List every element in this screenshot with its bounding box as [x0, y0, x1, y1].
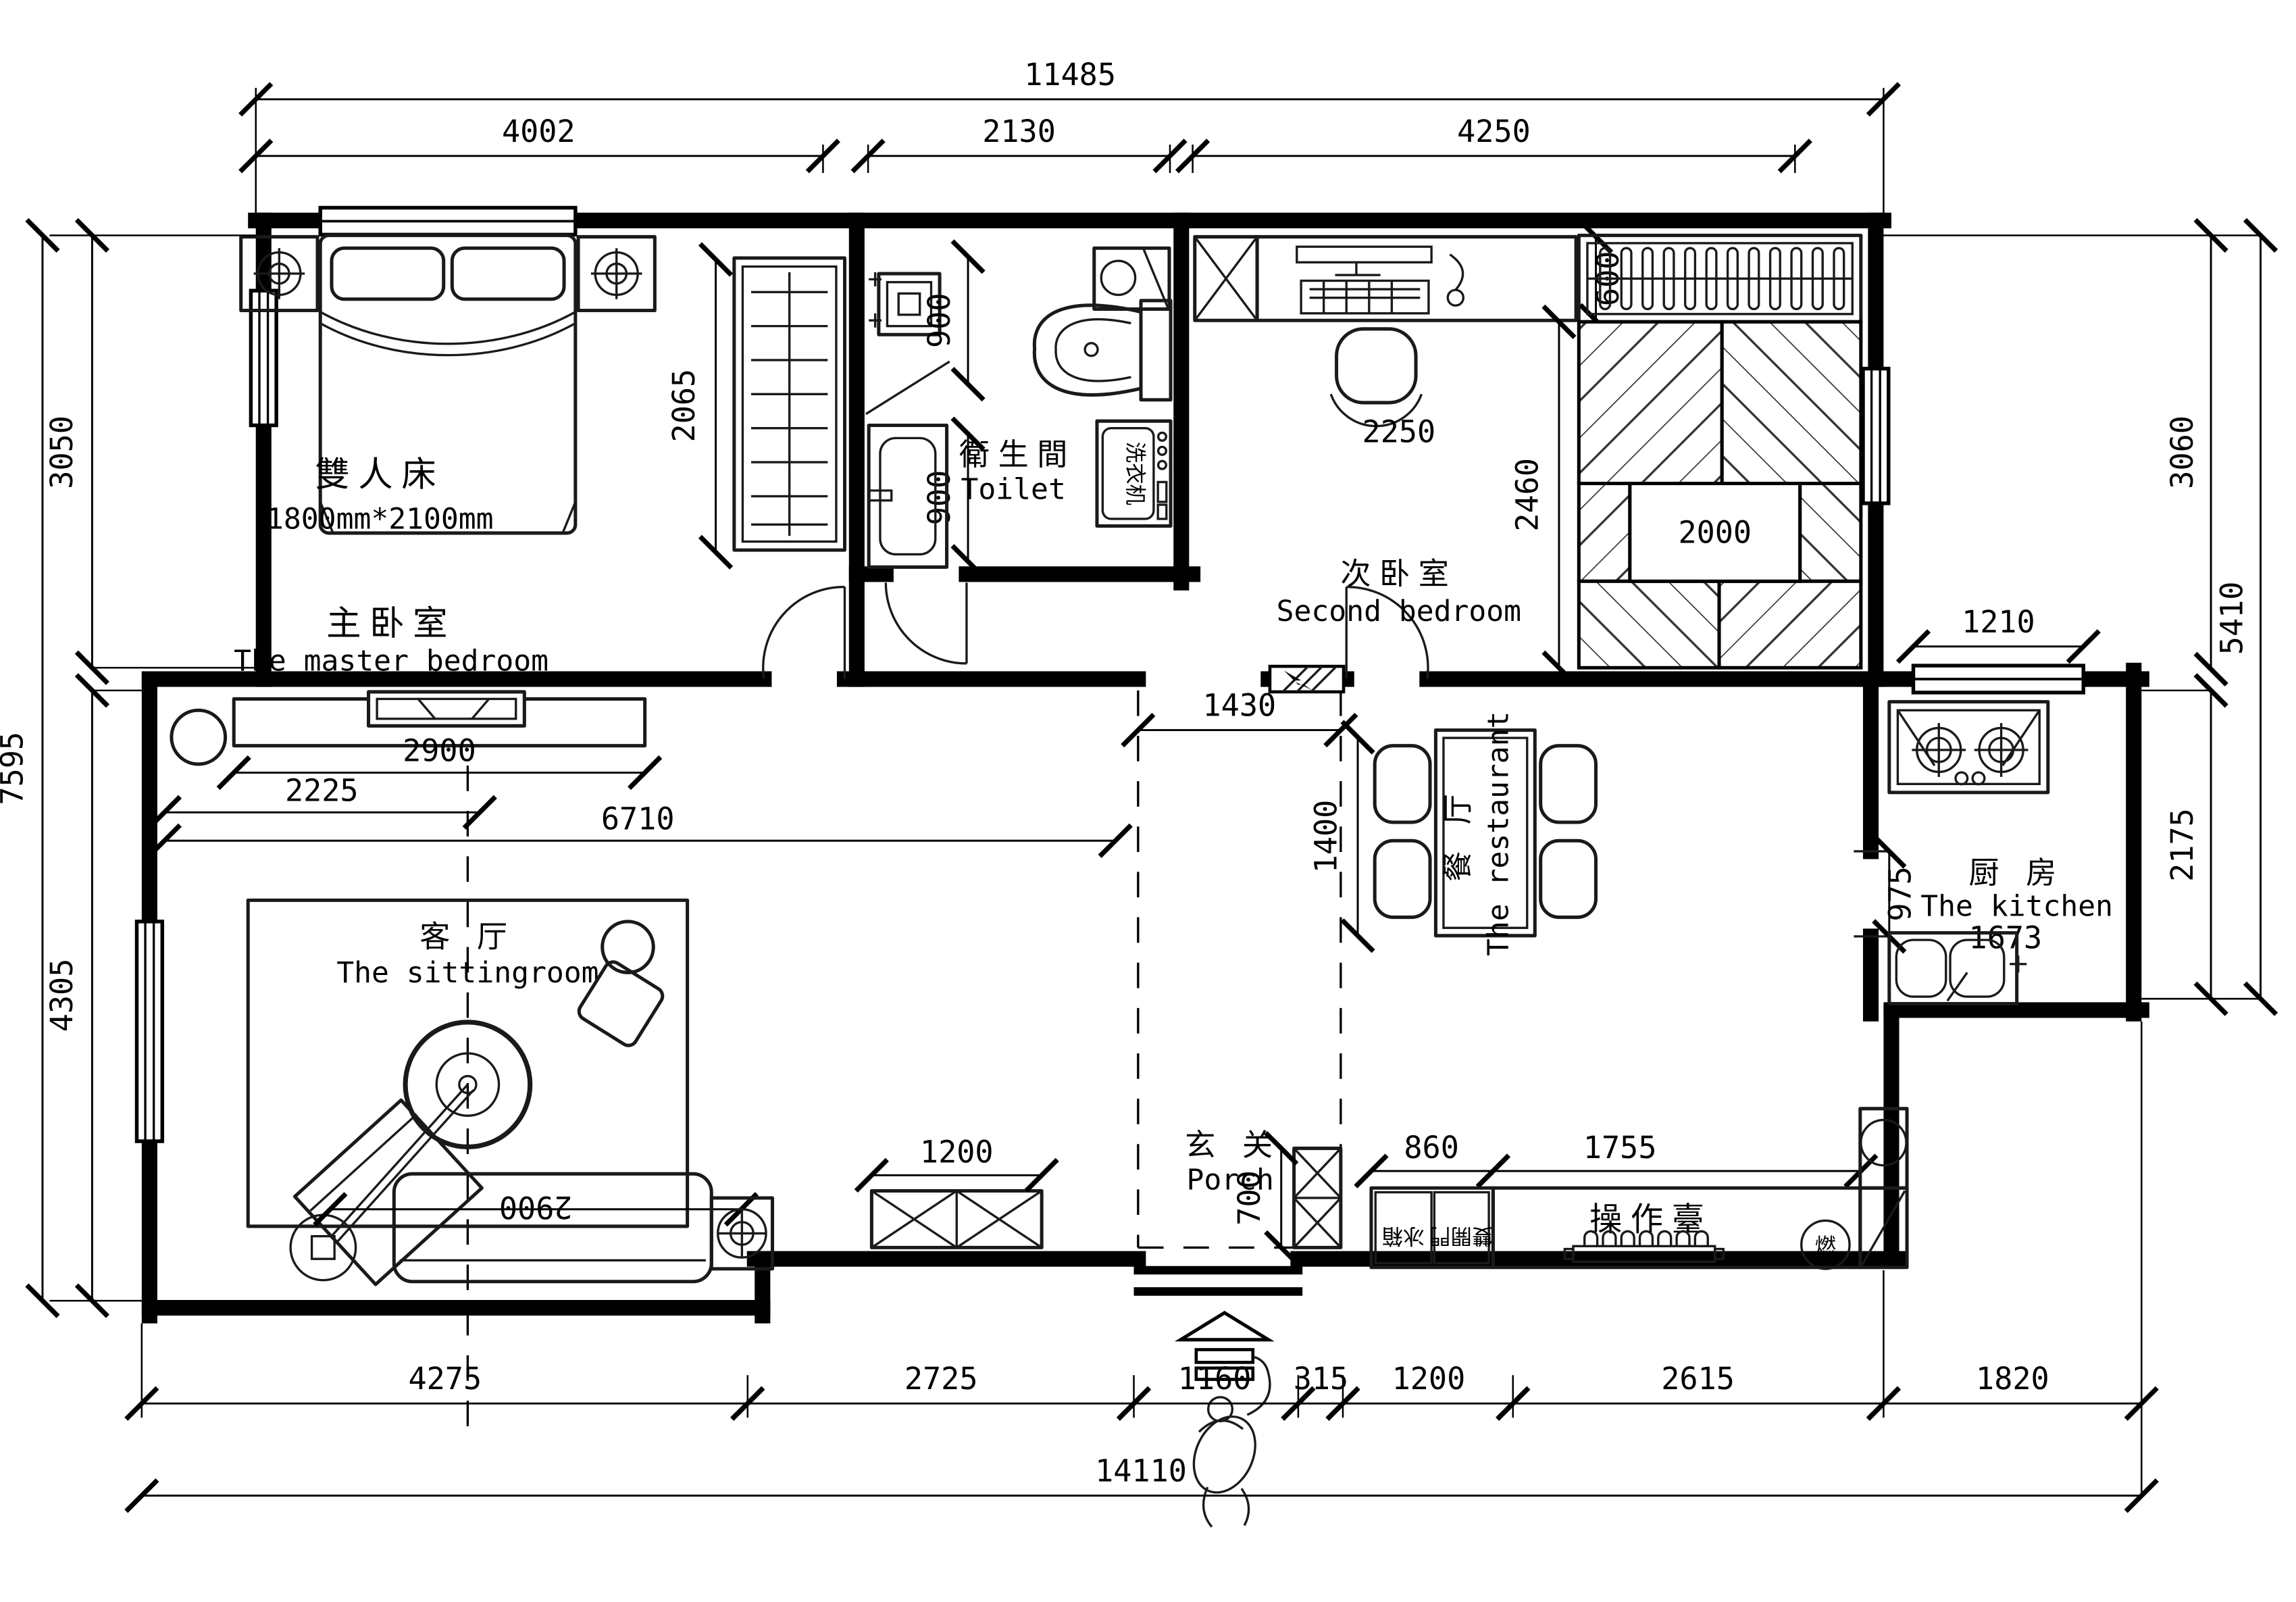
desk [1257, 236, 1576, 320]
dim-tatami-length: 2460 [1509, 458, 1545, 532]
dim-bottom-total: 14110 [1095, 1453, 1187, 1489]
pillow-left [332, 248, 444, 299]
dining-table: 餐 厅 The restaurant [1435, 711, 1535, 956]
electrical-panel [1270, 666, 1344, 692]
second-bedroom-label-en: Second bedroom [1277, 595, 1521, 628]
dim-b3: 1160 [1178, 1361, 1252, 1397]
dimensions-top: 11485 4002 2130 4250 [256, 57, 1884, 220]
toilet-door [886, 582, 967, 664]
dim-top-second: 4250 [1457, 114, 1531, 149]
chair-2 [1375, 841, 1430, 917]
second-cabinet-x [1195, 236, 1257, 320]
kitchen-label-en: The kitchen [1920, 889, 2113, 923]
floor-plan-drawing: 雙人床 1800mm*2100mm 主卧室 The master bedroom… [0, 0, 2296, 1602]
storage-cabinet-1200 [871, 1191, 1042, 1247]
dim-shoe: 700 [1231, 1170, 1267, 1225]
pillow-right [452, 248, 564, 299]
second-bedroom: 600 2250 2000 [1195, 235, 1861, 668]
window-kitchen-top [1914, 666, 2084, 693]
dim-dining: 1400 [1308, 800, 1344, 874]
sitting-label-zh: 客 厅 [419, 919, 515, 955]
counter-strip: 860 1755 冰箱 雙開門 操作臺 燃 [1371, 1109, 1907, 1269]
window-master-top [320, 207, 576, 234]
dim-wardrobe: 2065 [666, 369, 702, 443]
dim-right-top: 3060 [2164, 416, 2200, 489]
master-bedroom-label-en: The master bedroom [234, 644, 549, 678]
dim-b5: 1200 [1392, 1361, 1466, 1397]
fridge-label-right: 雙開門 [1429, 1224, 1493, 1248]
second-bedroom-label-zh: 次卧室 [1340, 555, 1457, 591]
dim-top-toilet: 2130 [982, 114, 1056, 149]
dim-kitchen-window: 1210 [1962, 604, 2035, 640]
chair-3 [1541, 746, 1596, 822]
toilet-label-zh: 衛生間 [959, 436, 1076, 472]
floor-lamp-arm [330, 1084, 474, 1243]
dim-living: 6710 [601, 801, 675, 836]
dim-b6: 2615 [1661, 1361, 1735, 1397]
dim-kitchen-width: 1673 [1969, 920, 2043, 956]
dim-top-master: 4002 [502, 114, 576, 149]
washing-machine-label: 洗衣机 [1123, 442, 1147, 505]
floor-plan-page: 雙人床 1800mm*2100mm 主卧室 The master bedroom… [0, 0, 2296, 1602]
dim-porch: 1430 [1203, 688, 1277, 724]
dining-room: 餐 厅 The restaurant 1400 [1308, 711, 1596, 956]
washbasin [869, 425, 946, 567]
dim-tv: 2900 [403, 733, 476, 769]
dim-tatami-width: 2000 [1678, 515, 1752, 551]
plant-pot [172, 710, 226, 764]
dim-right-kitchen: 2175 [2164, 808, 2200, 882]
kitchen-label-zh: 厨 房 [1969, 855, 2065, 891]
desk-chair [1331, 329, 1421, 426]
dim-vanity: 900 [921, 470, 957, 525]
gas-meter-label: 燃 [1815, 1234, 1836, 1259]
sitting-room: 2900 2225 6710 客 厅 The sittingroom [164, 692, 1115, 1284]
sitting-label-en: The sittingroom [336, 956, 598, 990]
bed-size-label: 1800mm*2100mm [266, 503, 494, 536]
dim-left-bottom: 4305 [44, 959, 80, 1032]
dimensions-left: 3050 4305 7595 [0, 235, 256, 1301]
master-bedroom: 雙人床 1800mm*2100mm 主卧室 The master bedroom… [234, 235, 844, 678]
dim-sofa: 2900 [499, 1189, 573, 1225]
shoe-cabinet [1294, 1149, 1341, 1248]
toilet-label-en: Toilet [961, 473, 1066, 507]
dim-counter: 1755 [1583, 1130, 1657, 1166]
entry-threshold [1138, 1270, 1298, 1291]
second-wardrobe [1579, 235, 1861, 322]
window-second-right [1863, 369, 1889, 503]
dim-shower: 900 [921, 293, 957, 347]
dim-tvoffset: 2225 [285, 773, 359, 809]
restaurant-label-zh: 餐 厅 [1440, 786, 1476, 882]
bed-label: 雙人床 [315, 455, 444, 495]
fridge-label-left: 冰箱 [1382, 1224, 1425, 1248]
master-bedroom-label-zh: 主卧室 [326, 603, 456, 644]
dim-cabinet: 1200 [920, 1134, 994, 1170]
shower-partition [866, 361, 950, 414]
window-sitting-left [136, 922, 162, 1141]
dimensions-right: 3060 2175 5410 [1883, 235, 2260, 999]
bed-blanket-fold [320, 312, 576, 355]
dim-b2: 2725 [904, 1361, 978, 1397]
master-wardrobe [734, 258, 845, 550]
nightstand-right [578, 236, 655, 310]
stove [1889, 702, 2048, 793]
chair-4 [1541, 841, 1596, 917]
master-bedroom-door [763, 587, 845, 679]
dim-kitchen-wall: 975 [1882, 866, 1918, 921]
dim-left-total: 7595 [0, 732, 30, 805]
tatami-bed: 2000 [1579, 322, 1861, 668]
plant-pot-2 [603, 922, 654, 973]
dim-b4: 315 [1294, 1361, 1348, 1397]
dim-left-top: 3050 [44, 416, 80, 489]
toilet-room: 900 900 [866, 248, 1171, 567]
toilet-wc [1034, 301, 1171, 400]
restaurant-label-en: The restaurant [1481, 711, 1515, 956]
dim-fridge: 860 [1404, 1130, 1458, 1166]
washing-machine: 洗衣机 [1097, 421, 1171, 526]
dim-desk-width: 2250 [1362, 414, 1436, 450]
dim-right-total: 5410 [2214, 582, 2249, 655]
dim-b7: 1820 [1976, 1361, 2049, 1397]
chair-1 [1375, 746, 1430, 822]
dim-top-total: 11485 [1024, 57, 1116, 93]
dim-b1: 4275 [408, 1361, 482, 1397]
porch-label-zh: 玄 关 [1185, 1127, 1281, 1163]
